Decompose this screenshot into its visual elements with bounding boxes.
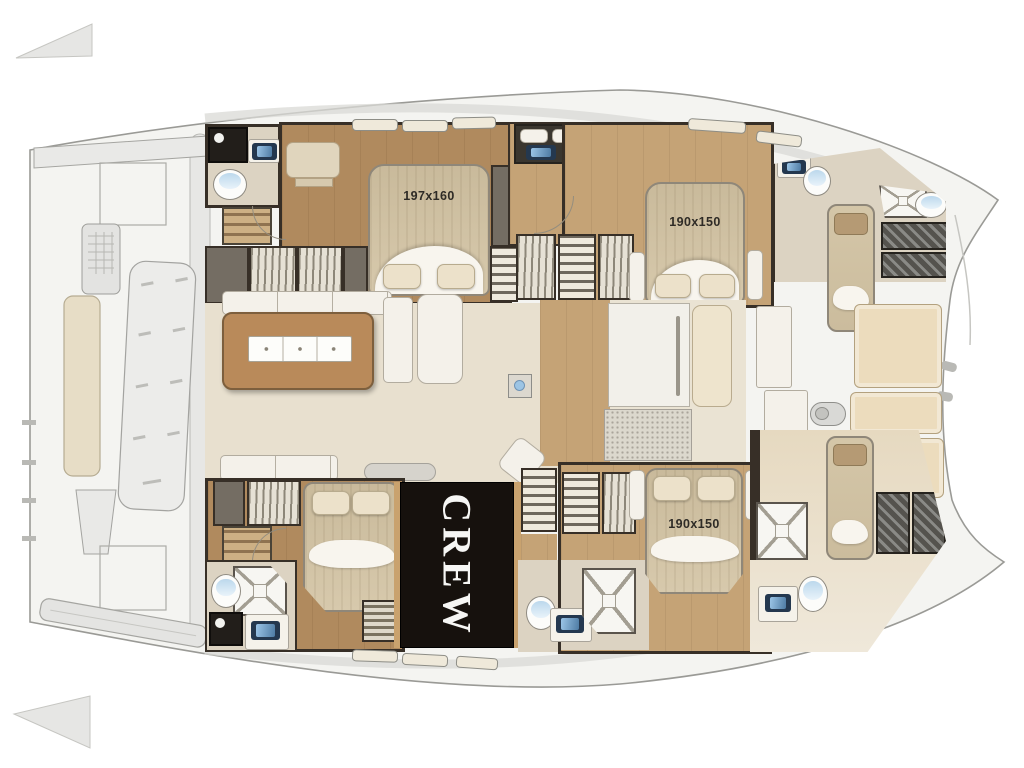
vip-aft-bed: 190x150 (645, 468, 743, 594)
entry-mat (604, 409, 692, 461)
sink-icon (251, 621, 280, 640)
bed-size-label: 190x150 (647, 518, 741, 531)
vip-forward-bed: 190x150 (645, 182, 745, 304)
hatch-ring (514, 380, 525, 391)
foredeck-locker (850, 392, 942, 434)
island-sink-unit (248, 336, 352, 362)
stern-step-top (16, 24, 92, 58)
foredeck-panel (756, 306, 792, 388)
toilet-icon (211, 574, 241, 608)
sink-icon (765, 594, 791, 612)
shower-drain (253, 584, 267, 598)
shelf-unit (490, 246, 518, 302)
galley-floor (540, 300, 612, 466)
toilet-icon (803, 166, 831, 196)
master-bathroom (205, 124, 281, 208)
stern-step-bottom (14, 696, 90, 748)
shower-cubicle-icon (209, 612, 243, 646)
bed-pillow (699, 274, 735, 298)
sink-basin (787, 163, 801, 171)
shower-head-icon (214, 133, 224, 143)
bed-size-label: 190x150 (647, 216, 743, 229)
shower-drain (898, 196, 908, 206)
floor-hatch (508, 374, 532, 398)
deck-hatch-dark (876, 492, 910, 554)
desk-shelf (295, 178, 333, 187)
vanity-desk (286, 142, 340, 178)
deck-window (352, 649, 398, 663)
foredeck-locker (854, 304, 942, 388)
toilet-bowl (921, 196, 942, 209)
deck-hatch-dark (881, 252, 949, 278)
hanging-wardrobe (247, 480, 301, 526)
saloon-sofa-arm (383, 297, 413, 383)
berth-blanket (832, 520, 868, 544)
shelf-unit (558, 234, 596, 300)
chaise-lounge (417, 294, 463, 384)
toilet-icon (213, 169, 247, 200)
vanity-counter (245, 614, 289, 650)
windlass-drum (815, 407, 829, 420)
deck-window (402, 653, 449, 667)
sink-basin (770, 597, 786, 609)
bed-pillow (653, 476, 691, 501)
sink-basin (531, 148, 551, 157)
forward-bench (692, 305, 732, 407)
bedside-table (629, 470, 645, 520)
sink-icon (252, 143, 277, 160)
locker (520, 129, 548, 143)
vanity-counter (248, 139, 280, 163)
shower-head-icon (215, 618, 225, 628)
bed-pillow (655, 274, 691, 298)
deck-window (352, 119, 398, 131)
bed-pillow (312, 491, 350, 515)
foredeck-panel (764, 390, 808, 434)
galley-island (222, 312, 374, 390)
bed-blanket (651, 536, 739, 562)
crew-label: CREW (434, 493, 481, 637)
sink-icon (526, 145, 556, 160)
helm-console (82, 224, 120, 294)
sink-icon (556, 615, 584, 633)
shower-cubicle-icon (208, 127, 248, 163)
sink-basin (561, 618, 579, 630)
locker (213, 480, 245, 526)
bed-size-label: 197x160 (370, 190, 488, 203)
deck-hatch-dark (881, 222, 949, 250)
windlass (810, 402, 846, 426)
toilet-icon (798, 576, 828, 612)
vanity-counter (758, 586, 798, 622)
bed-pillow (697, 476, 735, 501)
shelf-unit (521, 468, 557, 532)
shelf-unit (562, 472, 600, 534)
door-handle (676, 316, 680, 396)
sink-basin (256, 624, 275, 637)
toilet-bowl (803, 581, 823, 600)
shower-stall (233, 566, 287, 616)
shower-stall (582, 568, 636, 634)
toilet-bowl (808, 170, 826, 185)
bedside-table (629, 252, 645, 302)
deck-window (452, 117, 496, 130)
single-berth-forward-starboard (826, 436, 874, 560)
cockpit-bench (64, 296, 100, 476)
berth-pillow (833, 444, 867, 466)
bed-pillow (437, 264, 475, 289)
berth-pillow (834, 213, 868, 235)
aft-cabin-bed (303, 482, 399, 612)
crew-area: CREW (400, 482, 514, 648)
toilet-bowl (216, 579, 236, 597)
sun-lounger (118, 260, 197, 511)
bed-pillow (383, 264, 421, 289)
toilet-bowl (219, 173, 241, 189)
shower-stall (756, 502, 808, 560)
louver-vent (362, 600, 396, 642)
shower-drain (602, 594, 616, 608)
hanging-wardrobe (516, 234, 556, 300)
shower-drain (775, 524, 789, 538)
bed-pillow (352, 491, 390, 515)
sink-basin (257, 146, 272, 157)
deck-window (402, 120, 448, 132)
catamaran-floor-plan: 197x160 190x150 (0, 0, 1024, 768)
bed-blanket (309, 540, 395, 568)
bedside-table (747, 250, 763, 300)
toilet-bowl (531, 601, 551, 619)
master-bed: 197x160 (368, 164, 490, 296)
aft-bathroom-starboard (205, 560, 297, 652)
sink-icon (782, 160, 806, 174)
